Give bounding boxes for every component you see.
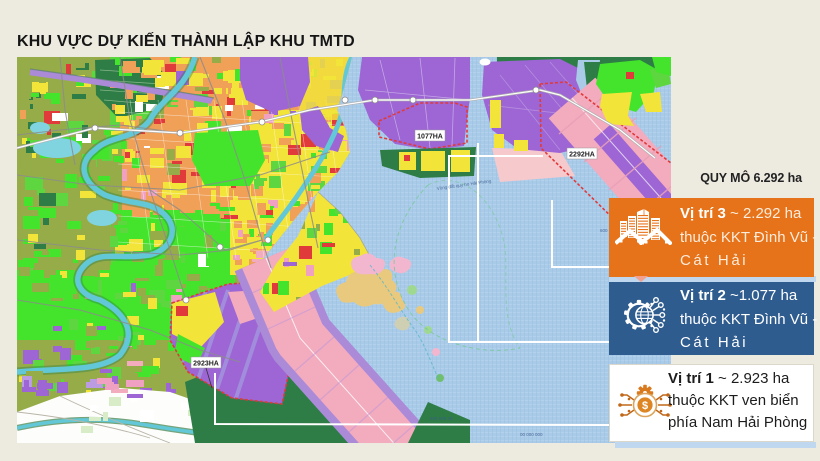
svg-text:2292HA: 2292HA (569, 152, 595, 159)
svg-text:$: $ (642, 400, 648, 412)
svg-text:1077HA: 1077HA (417, 134, 443, 141)
svg-text:2923HA: 2923HA (193, 361, 219, 368)
svg-text:600 600 00: 600 600 00 (430, 416, 453, 421)
svg-text:00 000 000: 00 000 000 (520, 432, 543, 437)
